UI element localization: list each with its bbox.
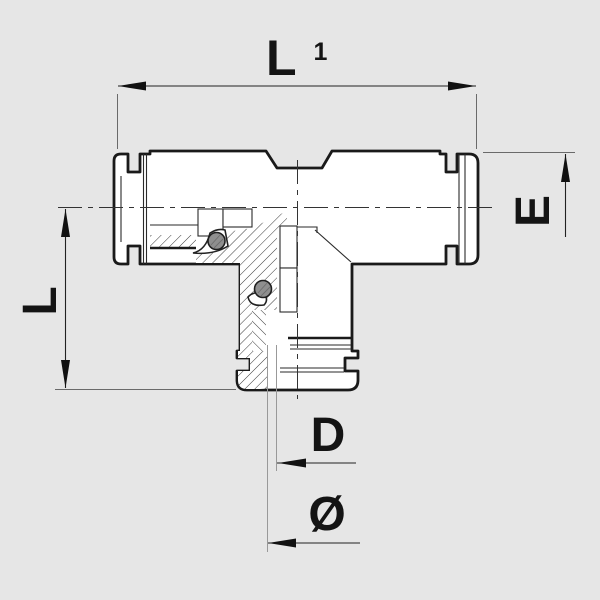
dim-label-l1-subscript: 1	[314, 40, 328, 65]
arrow-left-icon	[118, 82, 146, 91]
dim-label-l: L	[17, 286, 65, 315]
dim-label-e: E	[510, 195, 558, 227]
o-ring-bottom-icon	[255, 281, 272, 298]
arrow-right-icon	[448, 82, 476, 91]
dim-label-d: D	[311, 412, 346, 460]
dim-label-diameter: Ø	[308, 491, 345, 539]
tee-fitting-section-drawing	[0, 0, 600, 600]
technical-drawing-canvas: L 1 E L D Ø	[0, 0, 600, 600]
o-ring-top-icon	[208, 233, 225, 250]
dim-label-l1-base: L	[266, 33, 297, 83]
dim-label-l1: L 1	[266, 33, 327, 83]
arrow-left-icon	[268, 539, 296, 548]
arrow-down-icon	[61, 360, 70, 388]
arrow-up-icon	[561, 154, 570, 182]
arrow-up-icon	[61, 209, 70, 237]
arrow-left-icon	[278, 459, 306, 468]
dimension-l1	[118, 82, 477, 150]
